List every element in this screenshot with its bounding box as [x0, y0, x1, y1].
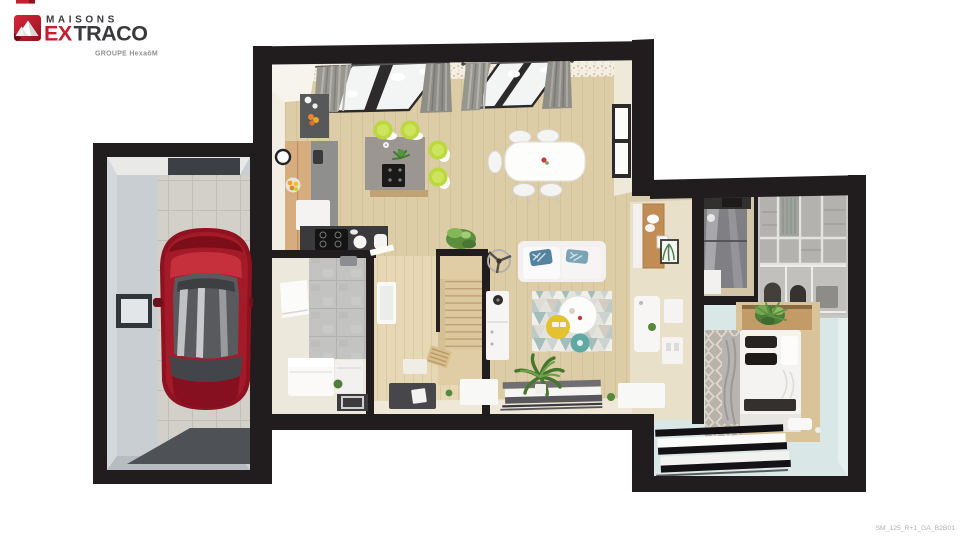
svg-text:GROUPE HexaōM: GROUPE HexaōM — [95, 51, 158, 58]
svg-text:TRACO: TRACO — [74, 22, 148, 46]
svg-text:SM_125_R+1_GA_B2B01: SM_125_R+1_GA_B2B01 — [875, 525, 955, 532]
svg-text:EX: EX — [44, 22, 73, 46]
